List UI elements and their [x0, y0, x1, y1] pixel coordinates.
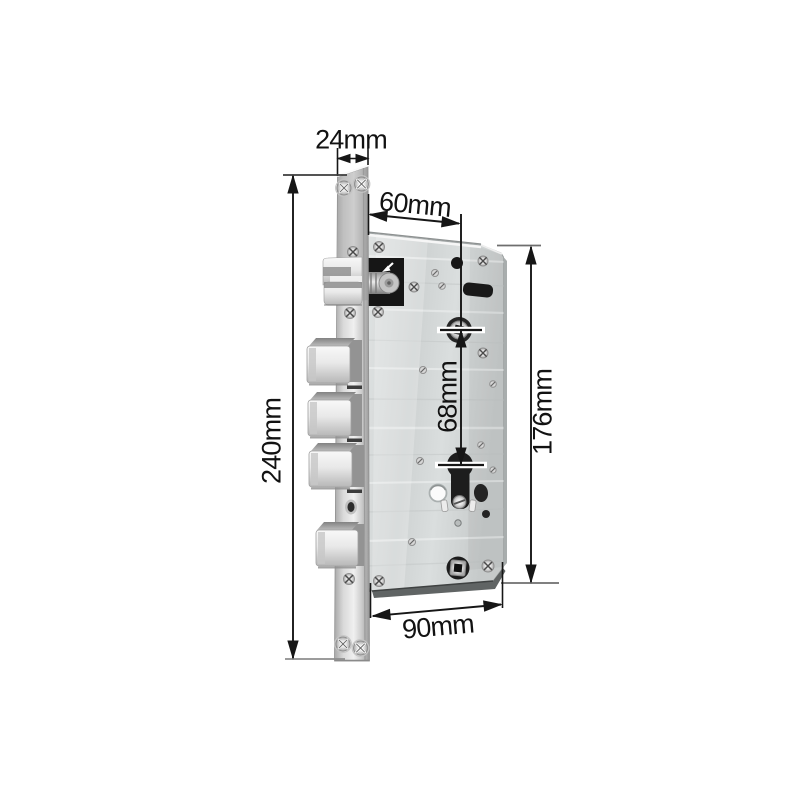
arrowhead: [373, 610, 390, 620]
latch-bolt-assembly: [323, 257, 362, 305]
latch-opening: [366, 258, 404, 306]
clip-right: [469, 500, 477, 512]
lock-dimension-drawing: [0, 0, 800, 800]
spindle-hub-hole: [447, 557, 470, 580]
arrowhead: [356, 155, 368, 163]
dim-label-backset: 60mm: [378, 188, 452, 222]
dim-label-faceplate-height: 240mm: [259, 398, 286, 484]
deadbolt-4: [316, 522, 364, 568]
deadbolt-1: [307, 338, 362, 389]
deadbolt-2: [308, 392, 362, 442]
case-side-sliver: [504, 257, 508, 567]
dim-label-body-height: 176mm: [530, 369, 557, 455]
small-pin-hole: [455, 520, 461, 526]
arrowhead: [288, 641, 298, 658]
clip-left: [441, 500, 449, 512]
small-hole-dark: [482, 510, 490, 518]
faceplate-empty-screw-hole: [345, 500, 357, 515]
arrowhead: [288, 176, 298, 193]
arrowhead: [484, 601, 501, 611]
deadbolt-3: [309, 443, 364, 493]
dim-label-handle-to-cylinder: 68mm: [435, 361, 462, 433]
arrowhead: [338, 155, 350, 163]
arrowhead: [526, 247, 536, 264]
arrowhead: [526, 565, 536, 582]
dim-label-body-width: 90mm: [401, 610, 475, 643]
dim-label-faceplate-width: 24mm: [315, 127, 387, 154]
diagram-canvas: 24mm 60mm 68mm 240mm 176mm 90mm: [0, 0, 800, 800]
